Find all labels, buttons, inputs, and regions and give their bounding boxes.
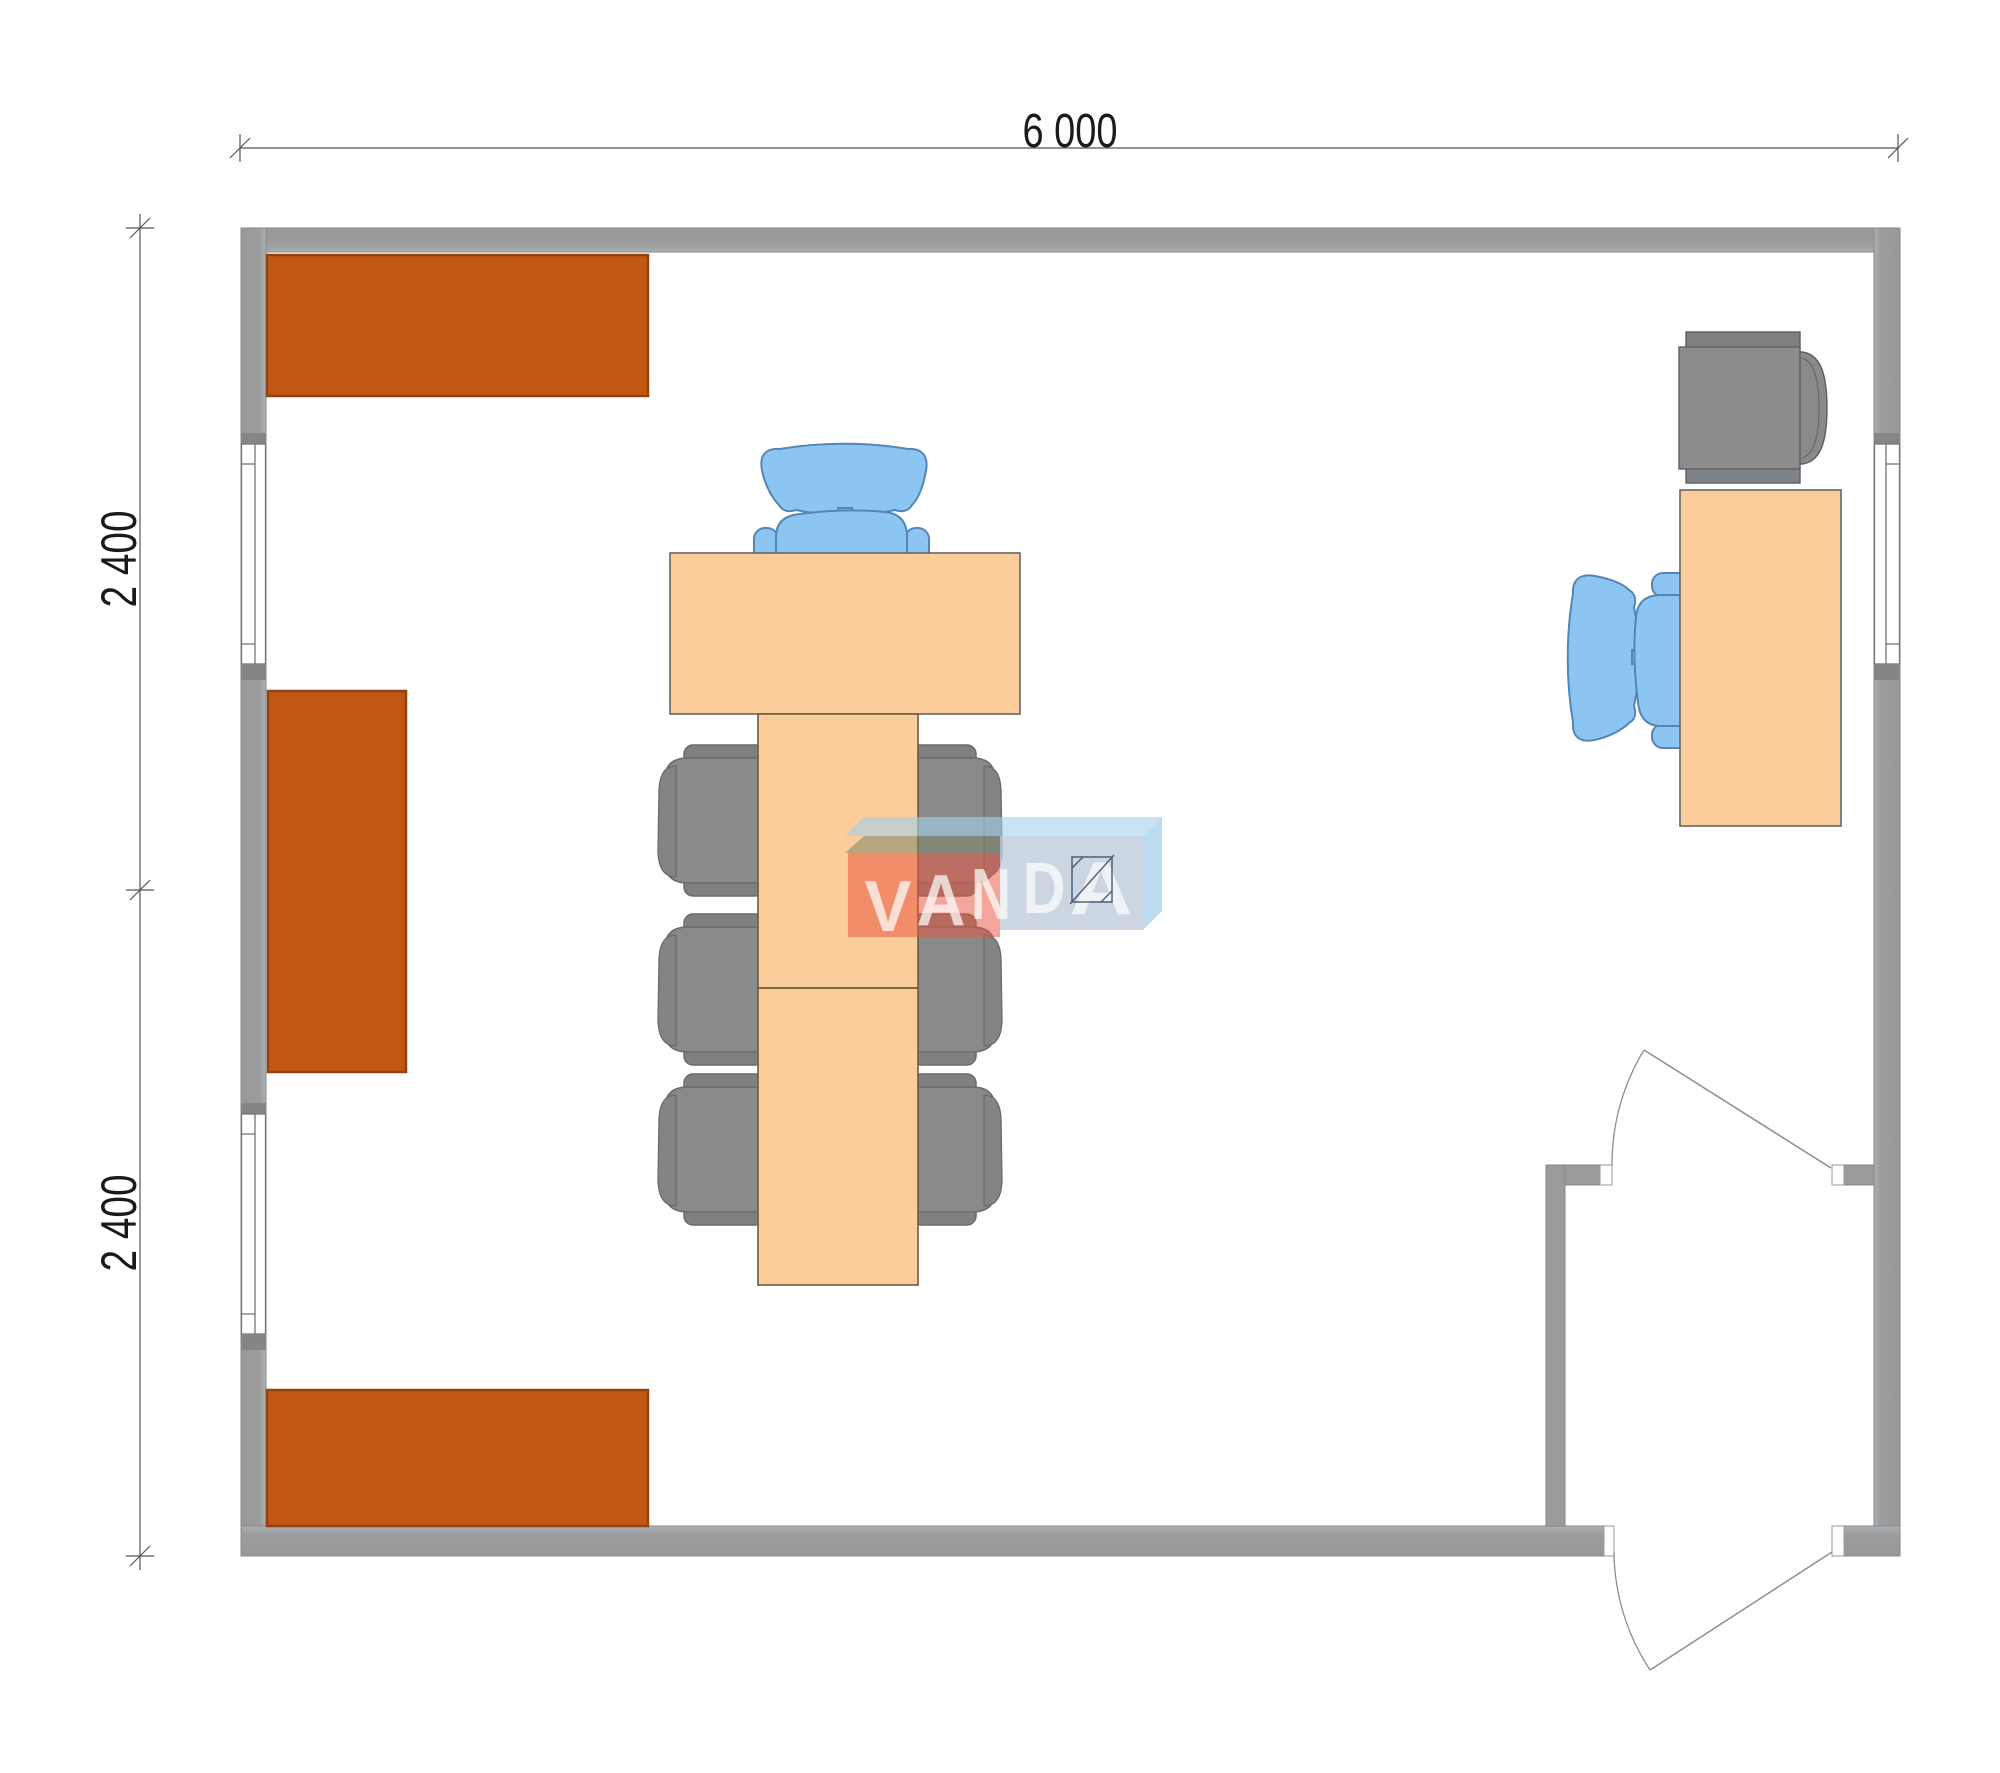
svg-text:A: A <box>1070 846 1133 930</box>
svg-text:2 400: 2 400 <box>91 511 147 608</box>
svg-text:D: D <box>1023 849 1066 929</box>
svg-text:N: N <box>971 855 1011 935</box>
svg-text:A: A <box>917 861 966 941</box>
svg-text:2 400: 2 400 <box>91 1175 147 1272</box>
svg-text:6 000: 6 000 <box>1023 105 1118 158</box>
svg-text:V: V <box>865 867 912 947</box>
